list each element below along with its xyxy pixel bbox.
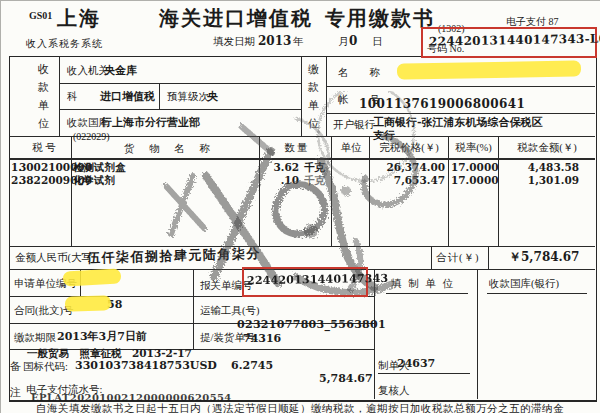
deadline-label: 缴款期限 bbox=[14, 331, 56, 345]
month-char: 月 bbox=[338, 35, 349, 49]
day-char: 日 bbox=[372, 35, 383, 49]
footer-fine-print: 自海关填发缴款书之日起十五日内（遇法定节假日顺延）缴纳税款，逾期按日加收税款总额… bbox=[36, 402, 564, 413]
grid-line bbox=[71, 136, 72, 246]
system-label: 收入系税务系统 bbox=[26, 37, 103, 51]
payer-name-label: 名 称 bbox=[338, 66, 380, 80]
form-code: GS01 bbox=[29, 10, 52, 21]
subject-label: 科 bbox=[67, 90, 78, 104]
grid-line bbox=[431, 246, 432, 269]
day-digit: 0 bbox=[349, 34, 357, 48]
deadline-value: 2013年3月7日前 bbox=[57, 329, 147, 344]
remarks-amount: 5,784.67 bbox=[319, 372, 373, 385]
grid-line bbox=[59, 83, 301, 84]
grid-line bbox=[488, 246, 489, 269]
declaration-no-box: 224420131440147343 bbox=[242, 267, 368, 297]
col-header-qty: 数 量 bbox=[261, 141, 331, 155]
grid-line bbox=[59, 109, 301, 110]
subject-value: 进口增值税 bbox=[100, 89, 155, 104]
declaration-no: 224420131440147343 bbox=[247, 272, 389, 287]
grid-line bbox=[259, 136, 260, 246]
total-label: 合计(￥) bbox=[436, 251, 480, 265]
col-header-unit: 单位 bbox=[333, 141, 369, 155]
income-agency-label: 收入机关 bbox=[67, 64, 109, 78]
reviewer-label: 复核人 bbox=[378, 384, 410, 398]
grid-line bbox=[374, 269, 375, 399]
redaction-highlight-name bbox=[397, 60, 581, 79]
grid-line bbox=[326, 86, 595, 87]
remarks-block-label: 备注 bbox=[9, 353, 22, 405]
table-row-qty: .10 bbox=[209, 174, 299, 186]
payee-block-label: 收款单位 bbox=[37, 60, 50, 132]
table-row-price: 26,374.00 bbox=[351, 161, 445, 173]
table-row-price: 7,653.47 bbox=[351, 174, 445, 186]
payer-account-value: 1001137619006800641 bbox=[359, 97, 525, 111]
goods-annotation: (022029) bbox=[73, 131, 110, 142]
grid-line bbox=[59, 56, 60, 136]
grid-line bbox=[9, 158, 595, 160]
total-value: ￥5,784.67 bbox=[509, 249, 579, 266]
budget-level-value: 央 bbox=[207, 89, 218, 104]
table-row-qty: 3.62 bbox=[209, 161, 299, 173]
transport-label: 运输工具(号) bbox=[200, 304, 260, 318]
grid-line bbox=[326, 113, 595, 114]
grid-line bbox=[159, 83, 160, 109]
table-row-amount: 4,483.58 bbox=[471, 161, 579, 173]
exchange-rate: 6.2745 bbox=[231, 359, 273, 372]
code-label: 国标代码: bbox=[23, 360, 68, 374]
document-title-right: 专用缴款书 bbox=[325, 5, 435, 32]
table-row-unit: 千克 bbox=[304, 161, 325, 175]
fill-date-year: 2013 bbox=[258, 34, 291, 48]
grid-line bbox=[331, 136, 332, 246]
col-header-rate: 税率(%) bbox=[449, 141, 498, 155]
fill-unit-header: 填 制 单 位 bbox=[391, 277, 455, 291]
grid-line bbox=[9, 246, 595, 247]
document-title-left: 海关进口增值税 bbox=[159, 5, 313, 32]
col-header-tax-no: 税 号 bbox=[17, 141, 71, 155]
col-header-price: 完税价格(￥) bbox=[370, 141, 448, 155]
header-underline bbox=[386, 293, 468, 294]
preparer-value: 24637 bbox=[397, 357, 435, 370]
amount-words-label: 金额人民币(大写 bbox=[15, 251, 92, 265]
income-agency-value: 央金库 bbox=[104, 63, 137, 78]
table-row-name: 检测试剂盒 bbox=[73, 161, 126, 175]
redaction-highlight-contract bbox=[65, 295, 111, 312]
lading-no-line2: 74316 bbox=[243, 332, 281, 345]
payer-block-label: 缴款单位 bbox=[307, 60, 320, 132]
fill-date-label: 填发日期 bbox=[213, 35, 255, 49]
preparer-underline bbox=[378, 373, 470, 374]
document-no-box: 号码 No. 224420131440147343-L02 bbox=[421, 27, 597, 58]
table-row-name: 化学试剂 bbox=[73, 174, 115, 188]
lading-no-line1: 02321077803_5563801 bbox=[237, 318, 386, 331]
payer-bank-label: 开户银行 bbox=[333, 118, 375, 132]
grid-line bbox=[301, 56, 302, 136]
col-header-amount: 税款金额(￥) bbox=[499, 141, 595, 155]
payer-bank-value: 工商银行-张江浦东机场综合保税区 bbox=[373, 115, 543, 130]
epay-serial-value: EPLAT2020100212000000620554 bbox=[31, 392, 232, 403]
customs-vat-payment-document: GS01 上海 海关进口增值税 专用缴款书 (1302) 电子支付 87 收入系… bbox=[0, 0, 600, 413]
grid-line bbox=[477, 269, 478, 399]
code-value: 330103738418753USD bbox=[75, 359, 217, 372]
header-underline bbox=[487, 293, 587, 294]
document-no: 224420131440147343-L02 bbox=[429, 31, 600, 48]
year-char: 年 bbox=[293, 35, 304, 49]
grid-line bbox=[193, 269, 194, 349]
table-row-unit: 千克 bbox=[304, 174, 325, 188]
table-row-amount: 1,301.09 bbox=[471, 174, 579, 186]
treasury-value: 行上海市分行营业部 bbox=[101, 115, 200, 130]
grid-line bbox=[326, 56, 327, 136]
city-name: 上海 bbox=[57, 5, 101, 32]
treasury-bank-header: 收款国库(银行) bbox=[489, 277, 559, 291]
redaction-highlight-applicant bbox=[63, 268, 122, 286]
budget-level-label: 预算级次 bbox=[167, 90, 209, 104]
col-header-goods-name: 货 物 名 称 bbox=[81, 142, 259, 156]
